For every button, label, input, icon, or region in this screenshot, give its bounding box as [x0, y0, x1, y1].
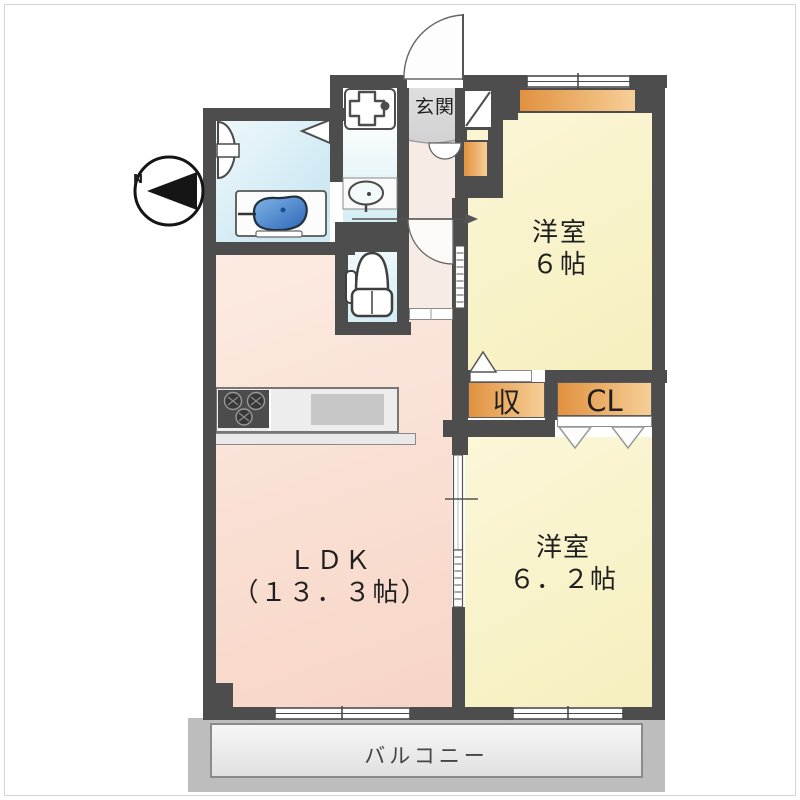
entrance-label: 玄関	[408, 96, 462, 119]
compass-north-label: N	[130, 172, 146, 187]
entrance-door-arc-icon	[404, 14, 463, 80]
floor-plan: N 玄関 洋室 ６帖 収 CL 洋室 ６．２帖 ＬＤＫ （１３．３帖） バルコニ…	[0, 0, 800, 800]
bedroom2-label: 洋室 ６．２帖	[478, 533, 648, 596]
closet-folding-door-icon	[559, 427, 591, 448]
sliding-door-icon	[456, 246, 465, 308]
fixtures-layer	[0, 0, 800, 800]
closet-label: CL	[557, 384, 652, 419]
genkan-step	[409, 140, 461, 159]
bathtub-icon	[236, 191, 326, 237]
door-arc-icon	[429, 143, 461, 159]
bath-folding-door-icon	[302, 120, 330, 143]
window-icon	[513, 706, 623, 720]
bedroom1-name: 洋室	[480, 218, 640, 250]
storage-door-icon	[470, 352, 496, 372]
ldk-size: （１３．３帖）	[218, 578, 443, 610]
window-icon	[527, 73, 630, 88]
washbasin-icon	[343, 178, 397, 212]
stove-burners-icon	[225, 393, 265, 426]
ldk-label: ＬＤＫ （１３．３帖）	[218, 546, 443, 609]
window-icon	[275, 706, 410, 720]
ldk-name: ＬＤＫ	[218, 546, 443, 578]
bedroom1-label: 洋室 ６帖	[480, 218, 640, 281]
sliding-door-icon	[445, 455, 478, 607]
shoe-cabinet-diagonal	[466, 92, 490, 126]
bedroom2-name: 洋室	[478, 533, 648, 565]
washer-pan-icon	[345, 89, 395, 129]
toilet-icon	[346, 253, 392, 316]
storage-label: 収	[468, 386, 545, 420]
bedroom2-size: ６．２帖	[478, 565, 648, 597]
balcony-label: バルコニー	[210, 744, 643, 770]
compass-icon	[135, 157, 203, 225]
vanity-icon	[217, 122, 239, 178]
bedroom1-size: ６帖	[480, 250, 640, 282]
closet-folding-door-icon	[612, 427, 644, 448]
